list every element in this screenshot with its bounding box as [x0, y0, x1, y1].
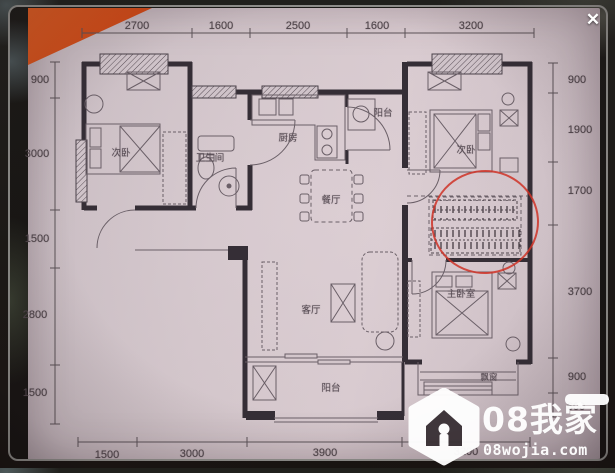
dim-left-1: 900 [31, 74, 49, 86]
dim-right-3: 1700 [568, 185, 592, 197]
dim-right-1: 900 [568, 74, 586, 86]
dim-bottom-1: 1500 [95, 449, 119, 461]
close-icon[interactable]: ✕ [581, 8, 605, 32]
dim-right-5: 900 [568, 371, 586, 383]
room-label-bathroom: 卫生间 [196, 150, 225, 164]
dim-top-3: 2500 [286, 20, 310, 32]
floorplan-drawing [0, 0, 615, 468]
dim-right-2: 1900 [568, 124, 592, 136]
room-label-master-bedroom: 主卧室 [447, 286, 476, 300]
dim-left-3: 1500 [25, 233, 49, 245]
room-label-kitchen: 厨房 [278, 130, 297, 144]
room-label-bedroom-right: 次卧 [456, 142, 475, 156]
dim-top-1: 2700 [125, 20, 149, 32]
dim-left-2: 3000 [25, 148, 49, 160]
room-label-bay-window: 飘窗 [480, 371, 497, 383]
dim-bottom-3: 3900 [313, 447, 337, 459]
dim-left-4: 2800 [23, 309, 47, 321]
dim-left-5: 1500 [23, 387, 47, 399]
dim-right-6: 600 [567, 401, 585, 413]
dim-bottom-4: 3200 [454, 446, 478, 458]
room-label-living: 客厅 [301, 302, 320, 316]
room-label-balcony-service: 阳台 [373, 105, 392, 119]
dim-top-4: 1600 [365, 20, 389, 32]
dim-top-2: 1600 [209, 20, 233, 32]
room-label-bedroom-left: 次卧 [111, 145, 130, 159]
dim-right-4: 3700 [568, 286, 592, 298]
dim-top-5: 3200 [459, 20, 483, 32]
wardrobe-symbols [431, 200, 520, 253]
room-label-dining: 餐厅 [321, 192, 340, 206]
dim-bottom-2: 3000 [180, 448, 204, 460]
room-label-balcony-main: 阳台 [321, 380, 340, 394]
floorplan-overlay: 2700 1600 2500 1600 3200 900 3000 1500 2… [0, 0, 615, 468]
